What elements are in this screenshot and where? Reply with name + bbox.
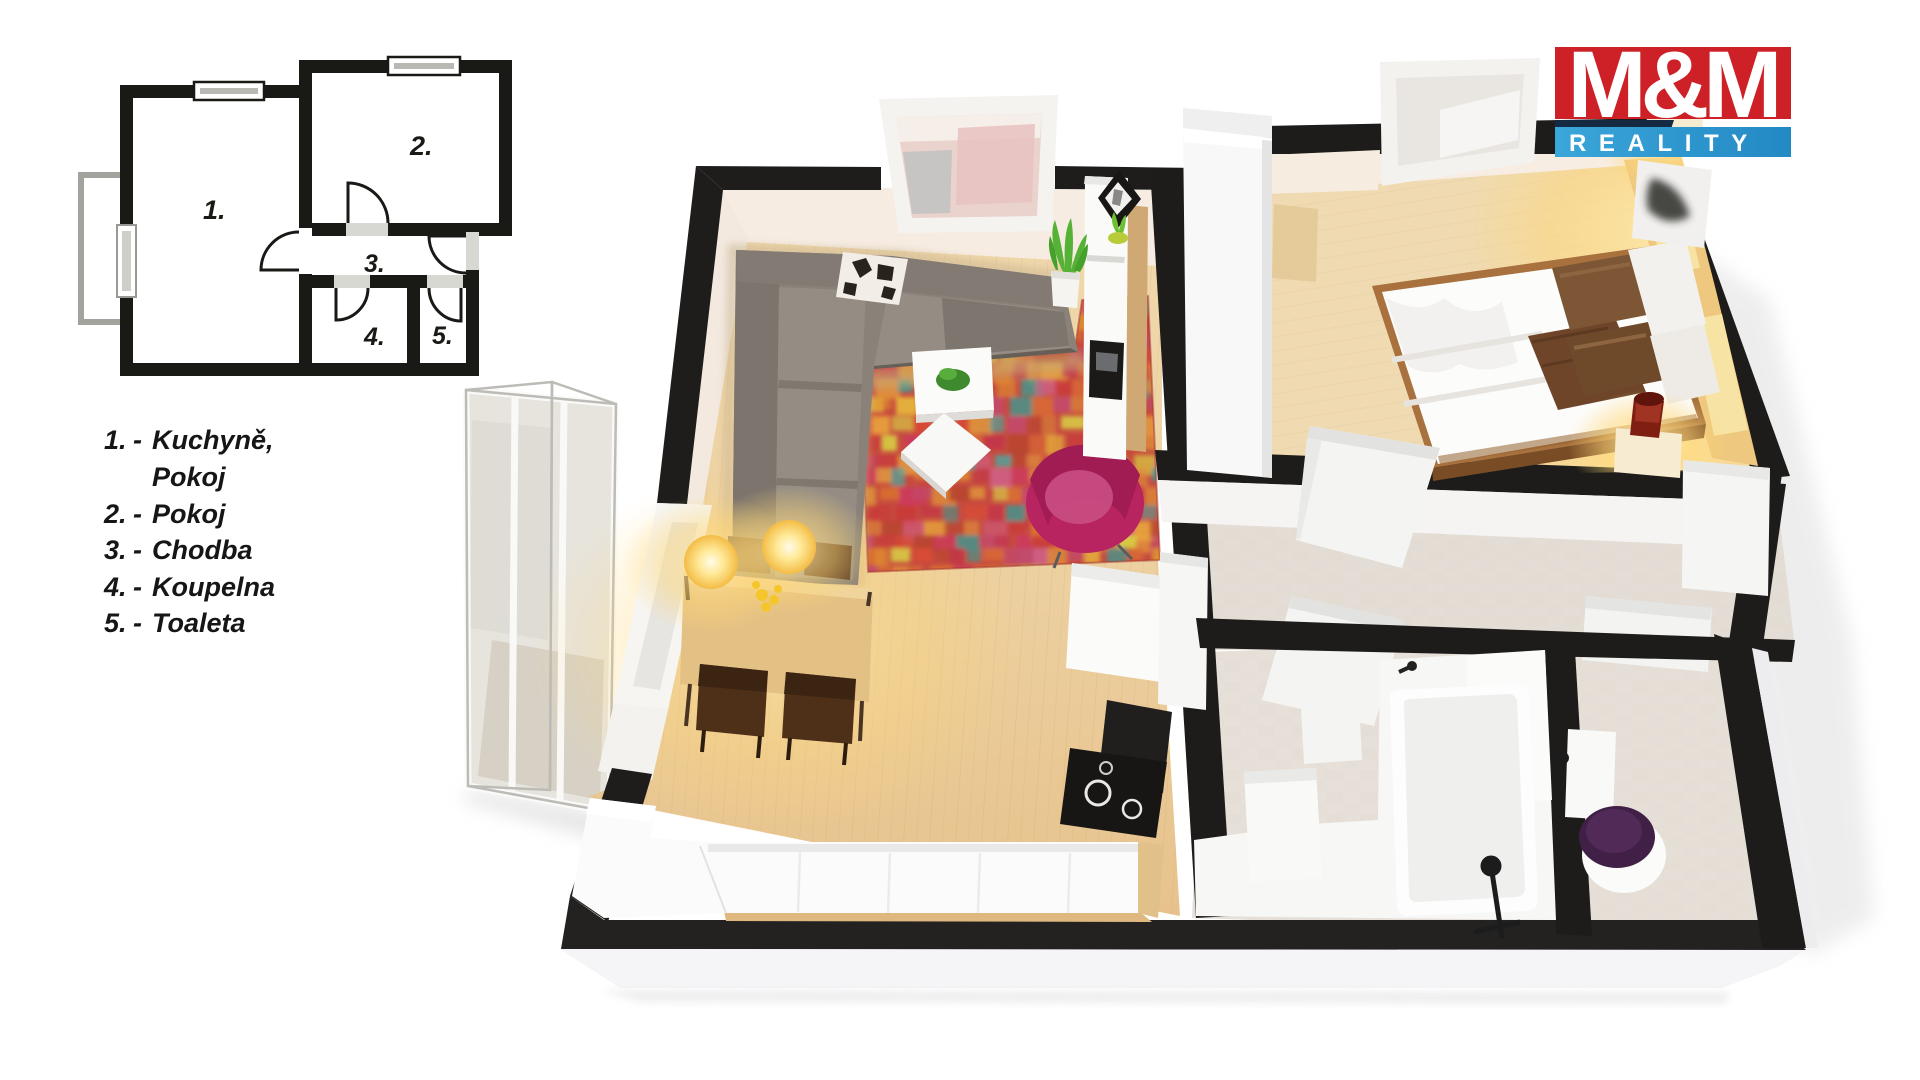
svg-text:5.: 5.	[104, 608, 127, 638]
svg-text:Toaleta: Toaleta	[152, 608, 246, 638]
svg-text:1.: 1.	[203, 195, 226, 225]
svg-text:-: -	[133, 608, 142, 638]
svg-text:Pokoj: Pokoj	[152, 499, 226, 529]
svg-text:3.: 3.	[364, 250, 385, 278]
svg-text:2.: 2.	[409, 131, 433, 161]
svg-text:4.: 4.	[103, 572, 127, 602]
svg-text:Koupelna: Koupelna	[152, 572, 275, 602]
svg-text:Kuchyně,: Kuchyně,	[152, 425, 274, 455]
svg-text:-: -	[133, 499, 142, 529]
svg-text:Chodba: Chodba	[152, 535, 253, 565]
svg-text:3.: 3.	[104, 535, 127, 565]
svg-text:-: -	[133, 572, 142, 602]
svg-text:REALITY: REALITY	[1569, 130, 1760, 157]
svg-text:-: -	[133, 535, 142, 565]
svg-text:5.: 5.	[432, 322, 453, 350]
svg-text:1.: 1.	[104, 425, 127, 455]
svg-text:2.: 2.	[103, 499, 127, 529]
svg-text:4.: 4.	[363, 323, 385, 351]
svg-text:Pokoj: Pokoj	[152, 462, 226, 492]
svg-text:-: -	[133, 425, 142, 455]
